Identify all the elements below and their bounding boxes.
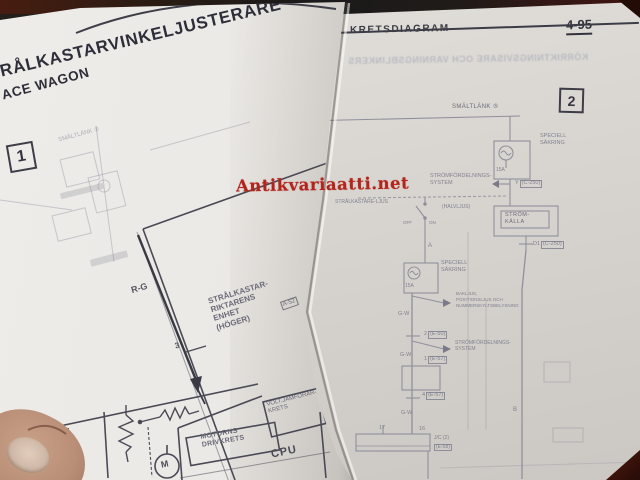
thumb-crease (0, 408, 120, 468)
photo-of-open-manual: KRETSDIAGRAM 4-95 KÖRRIKTNINGSVISARE OCH… (0, 0, 640, 480)
watermark: Antikvariaatti.net (236, 173, 409, 195)
